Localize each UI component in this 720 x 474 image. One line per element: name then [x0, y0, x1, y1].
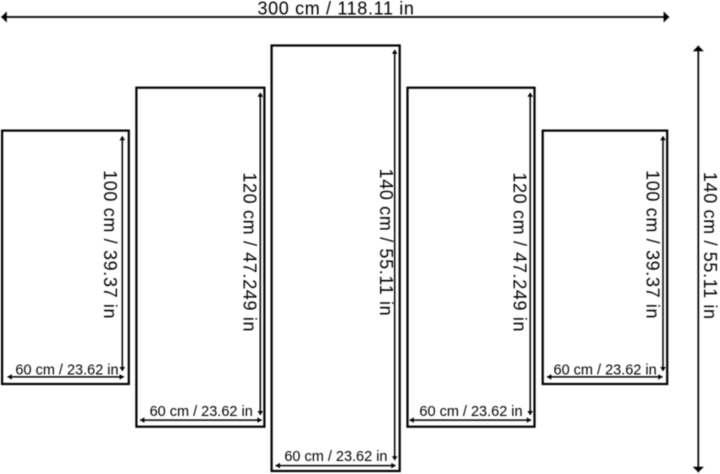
svg-text:140 cm / 55.11 in: 140 cm / 55.11 in: [700, 172, 720, 320]
svg-text:60 cm / 23.62 in: 60 cm / 23.62 in: [15, 363, 118, 379]
svg-text:120 cm / 47.249 in: 120 cm / 47.249 in: [240, 172, 260, 332]
svg-text:60 cm / 23.62 in: 60 cm / 23.62 in: [419, 404, 522, 420]
svg-text:100 cm / 39.37 in: 100 cm / 39.37 in: [643, 170, 663, 319]
svg-text:120 cm / 47.249 in: 120 cm / 47.249 in: [510, 172, 530, 332]
svg-text:60 cm / 23.62 in: 60 cm / 23.62 in: [554, 363, 657, 379]
svg-text:60 cm / 23.62 in: 60 cm / 23.62 in: [150, 404, 253, 420]
svg-text:140 cm / 55.11 in: 140 cm / 55.11 in: [376, 169, 396, 317]
svg-text:100 cm / 39.37 in: 100 cm / 39.37 in: [100, 170, 120, 319]
svg-text:60 cm / 23.62 in: 60 cm / 23.62 in: [284, 449, 387, 465]
svg-text:300 cm / 118.11 in: 300 cm / 118.11 in: [257, 0, 414, 19]
